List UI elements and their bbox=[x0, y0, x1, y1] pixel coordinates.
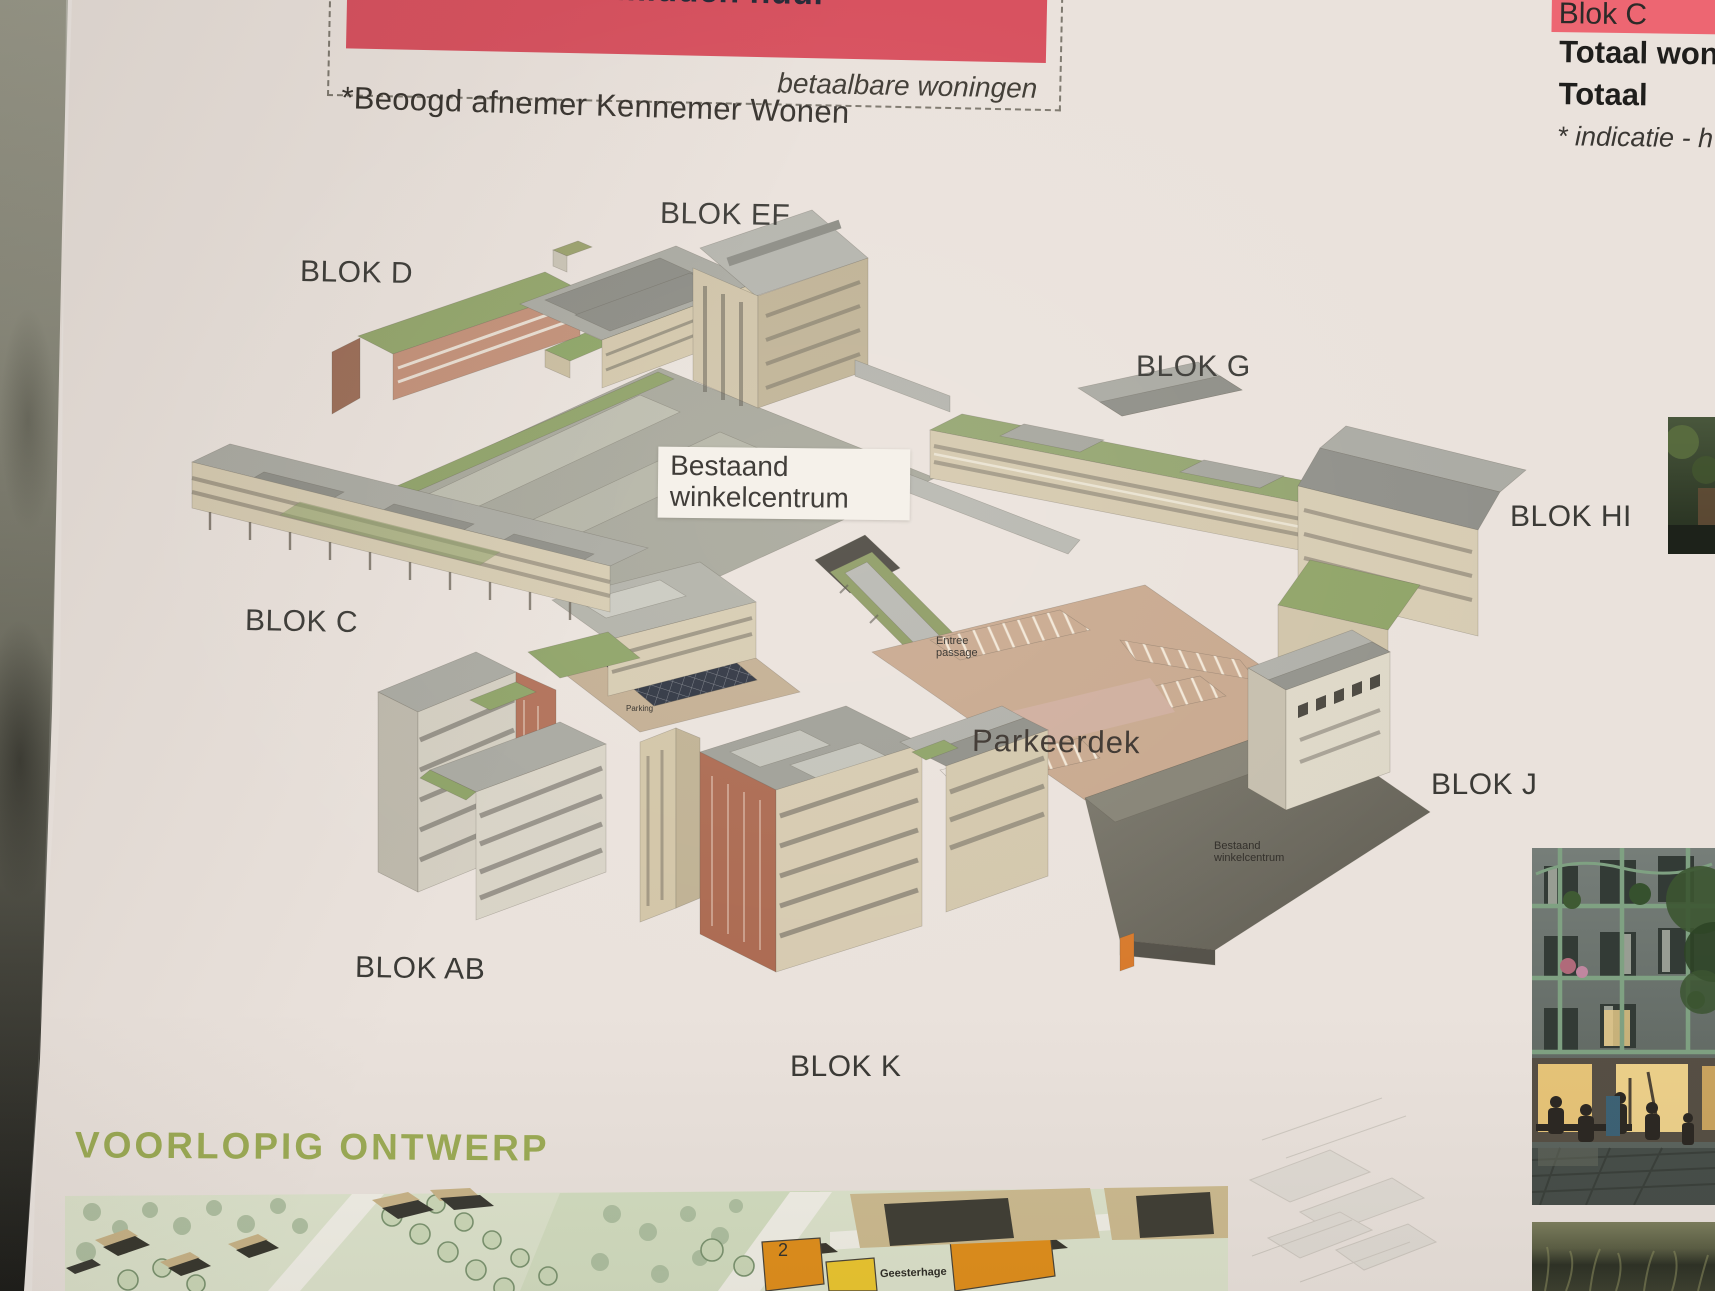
label-blok-d: BLOK D bbox=[300, 255, 414, 291]
site-plan-map bbox=[65, 1186, 1228, 1291]
axonometric-site-plan bbox=[0, 0, 1715, 1291]
label-blok-j: BLOK J bbox=[1431, 768, 1537, 802]
section-title-voorlopig-ontwerp: VOORLOPIG ONTWERP bbox=[75, 1124, 550, 1169]
faint-sketch bbox=[1250, 1098, 1436, 1282]
map-building-number: 2 bbox=[778, 1240, 788, 1261]
site-axonometric bbox=[192, 210, 1526, 972]
label-bestaand-winkelcentrum-small: Bestaand winkelcentrum bbox=[1214, 840, 1284, 864]
photo-grass-field bbox=[1532, 1222, 1715, 1291]
label-parking-small: Parking bbox=[626, 705, 653, 714]
label-entree-passage: Entree passage bbox=[936, 635, 978, 659]
label-blok-k: BLOK K bbox=[790, 1050, 901, 1084]
label-bestaand-winkelcentrum: Bestaand winkelcentrum bbox=[658, 447, 911, 520]
label-blok-ef: BLOK EF bbox=[660, 197, 791, 233]
label-blok-hi: BLOK HI bbox=[1510, 500, 1632, 534]
label-blok-ab: BLOK AB bbox=[355, 951, 486, 987]
photo-street-scene bbox=[1532, 848, 1715, 1205]
map-street-name: Geesterhage bbox=[880, 1266, 947, 1280]
label-blok-c: BLOK C bbox=[245, 604, 359, 640]
label-parkeerdek: Parkeerdek bbox=[972, 723, 1141, 761]
label-blok-g: BLOK G bbox=[1136, 350, 1251, 384]
photo-top-right bbox=[1665, 417, 1715, 554]
